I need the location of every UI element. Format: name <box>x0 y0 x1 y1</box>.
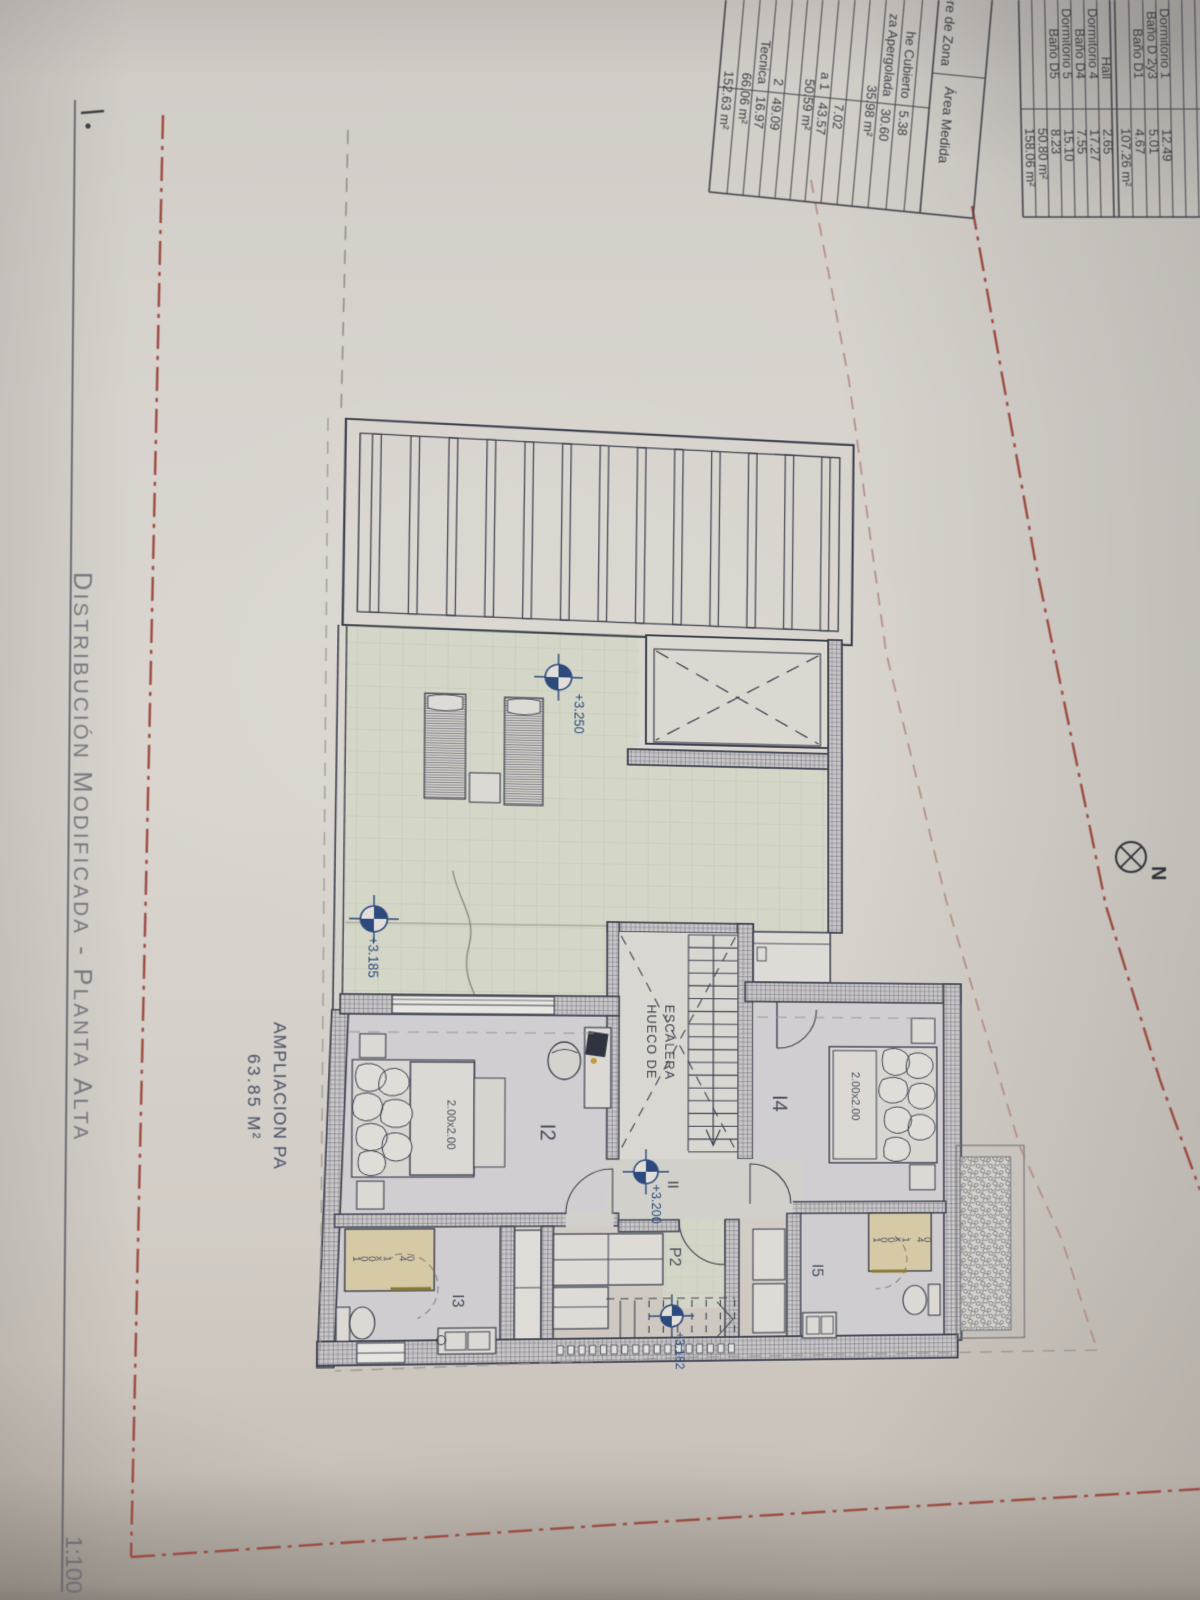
svg-text:za Apergolada: za Apergolada <box>880 13 902 98</box>
svg-text:Área Medida: Área Medida <box>936 86 958 164</box>
svg-text:Dormitorio 1: Dormitorio 1 <box>1157 8 1173 79</box>
svg-text:1:100: 1:100 <box>61 1536 87 1594</box>
svg-text:4.67: 4.67 <box>1132 129 1148 154</box>
svg-text:63.85 M²: 63.85 M² <box>244 1054 264 1141</box>
svg-text:2.65: 2.65 <box>1100 129 1116 154</box>
svg-text:7.02: 7.02 <box>830 103 847 130</box>
svg-text:5.38: 5.38 <box>895 110 912 137</box>
svg-text:AMPLIACION PA: AMPLIACION PA <box>270 1022 290 1170</box>
svg-text:43.57: 43.57 <box>813 102 831 136</box>
svg-text:49.09: 49.09 <box>767 97 785 131</box>
svg-text:DISTRIBUCIÓN MODIFICADA - PLAN: DISTRIBUCIÓN MODIFICADA - PLANTA ALTA <box>68 572 96 1142</box>
svg-text:35.98 m²: 35.98 m² <box>860 84 880 137</box>
svg-text:nbre de Zona: nbre de Zona <box>938 0 960 67</box>
svg-text:Baño D1: Baño D1 <box>1130 28 1146 79</box>
svg-text:107.26 m²: 107.26 m² <box>1118 128 1134 187</box>
svg-text:Hall: Hall <box>1099 57 1114 80</box>
svg-text:2: 2 <box>771 78 787 87</box>
svg-text:a 1: a 1 <box>817 72 834 92</box>
svg-text:16.97: 16.97 <box>751 96 769 130</box>
svg-text:66.06 m²: 66.06 m² <box>735 72 755 125</box>
svg-text:30.60: 30.60 <box>876 108 894 142</box>
svg-text:Dormitorio 4: Dormitorio 4 <box>1085 8 1101 79</box>
svg-text:N: N <box>1147 866 1169 880</box>
svg-text:Tecnica: Tecnica <box>755 39 774 85</box>
svg-text:12.49: 12.49 <box>1159 129 1175 162</box>
